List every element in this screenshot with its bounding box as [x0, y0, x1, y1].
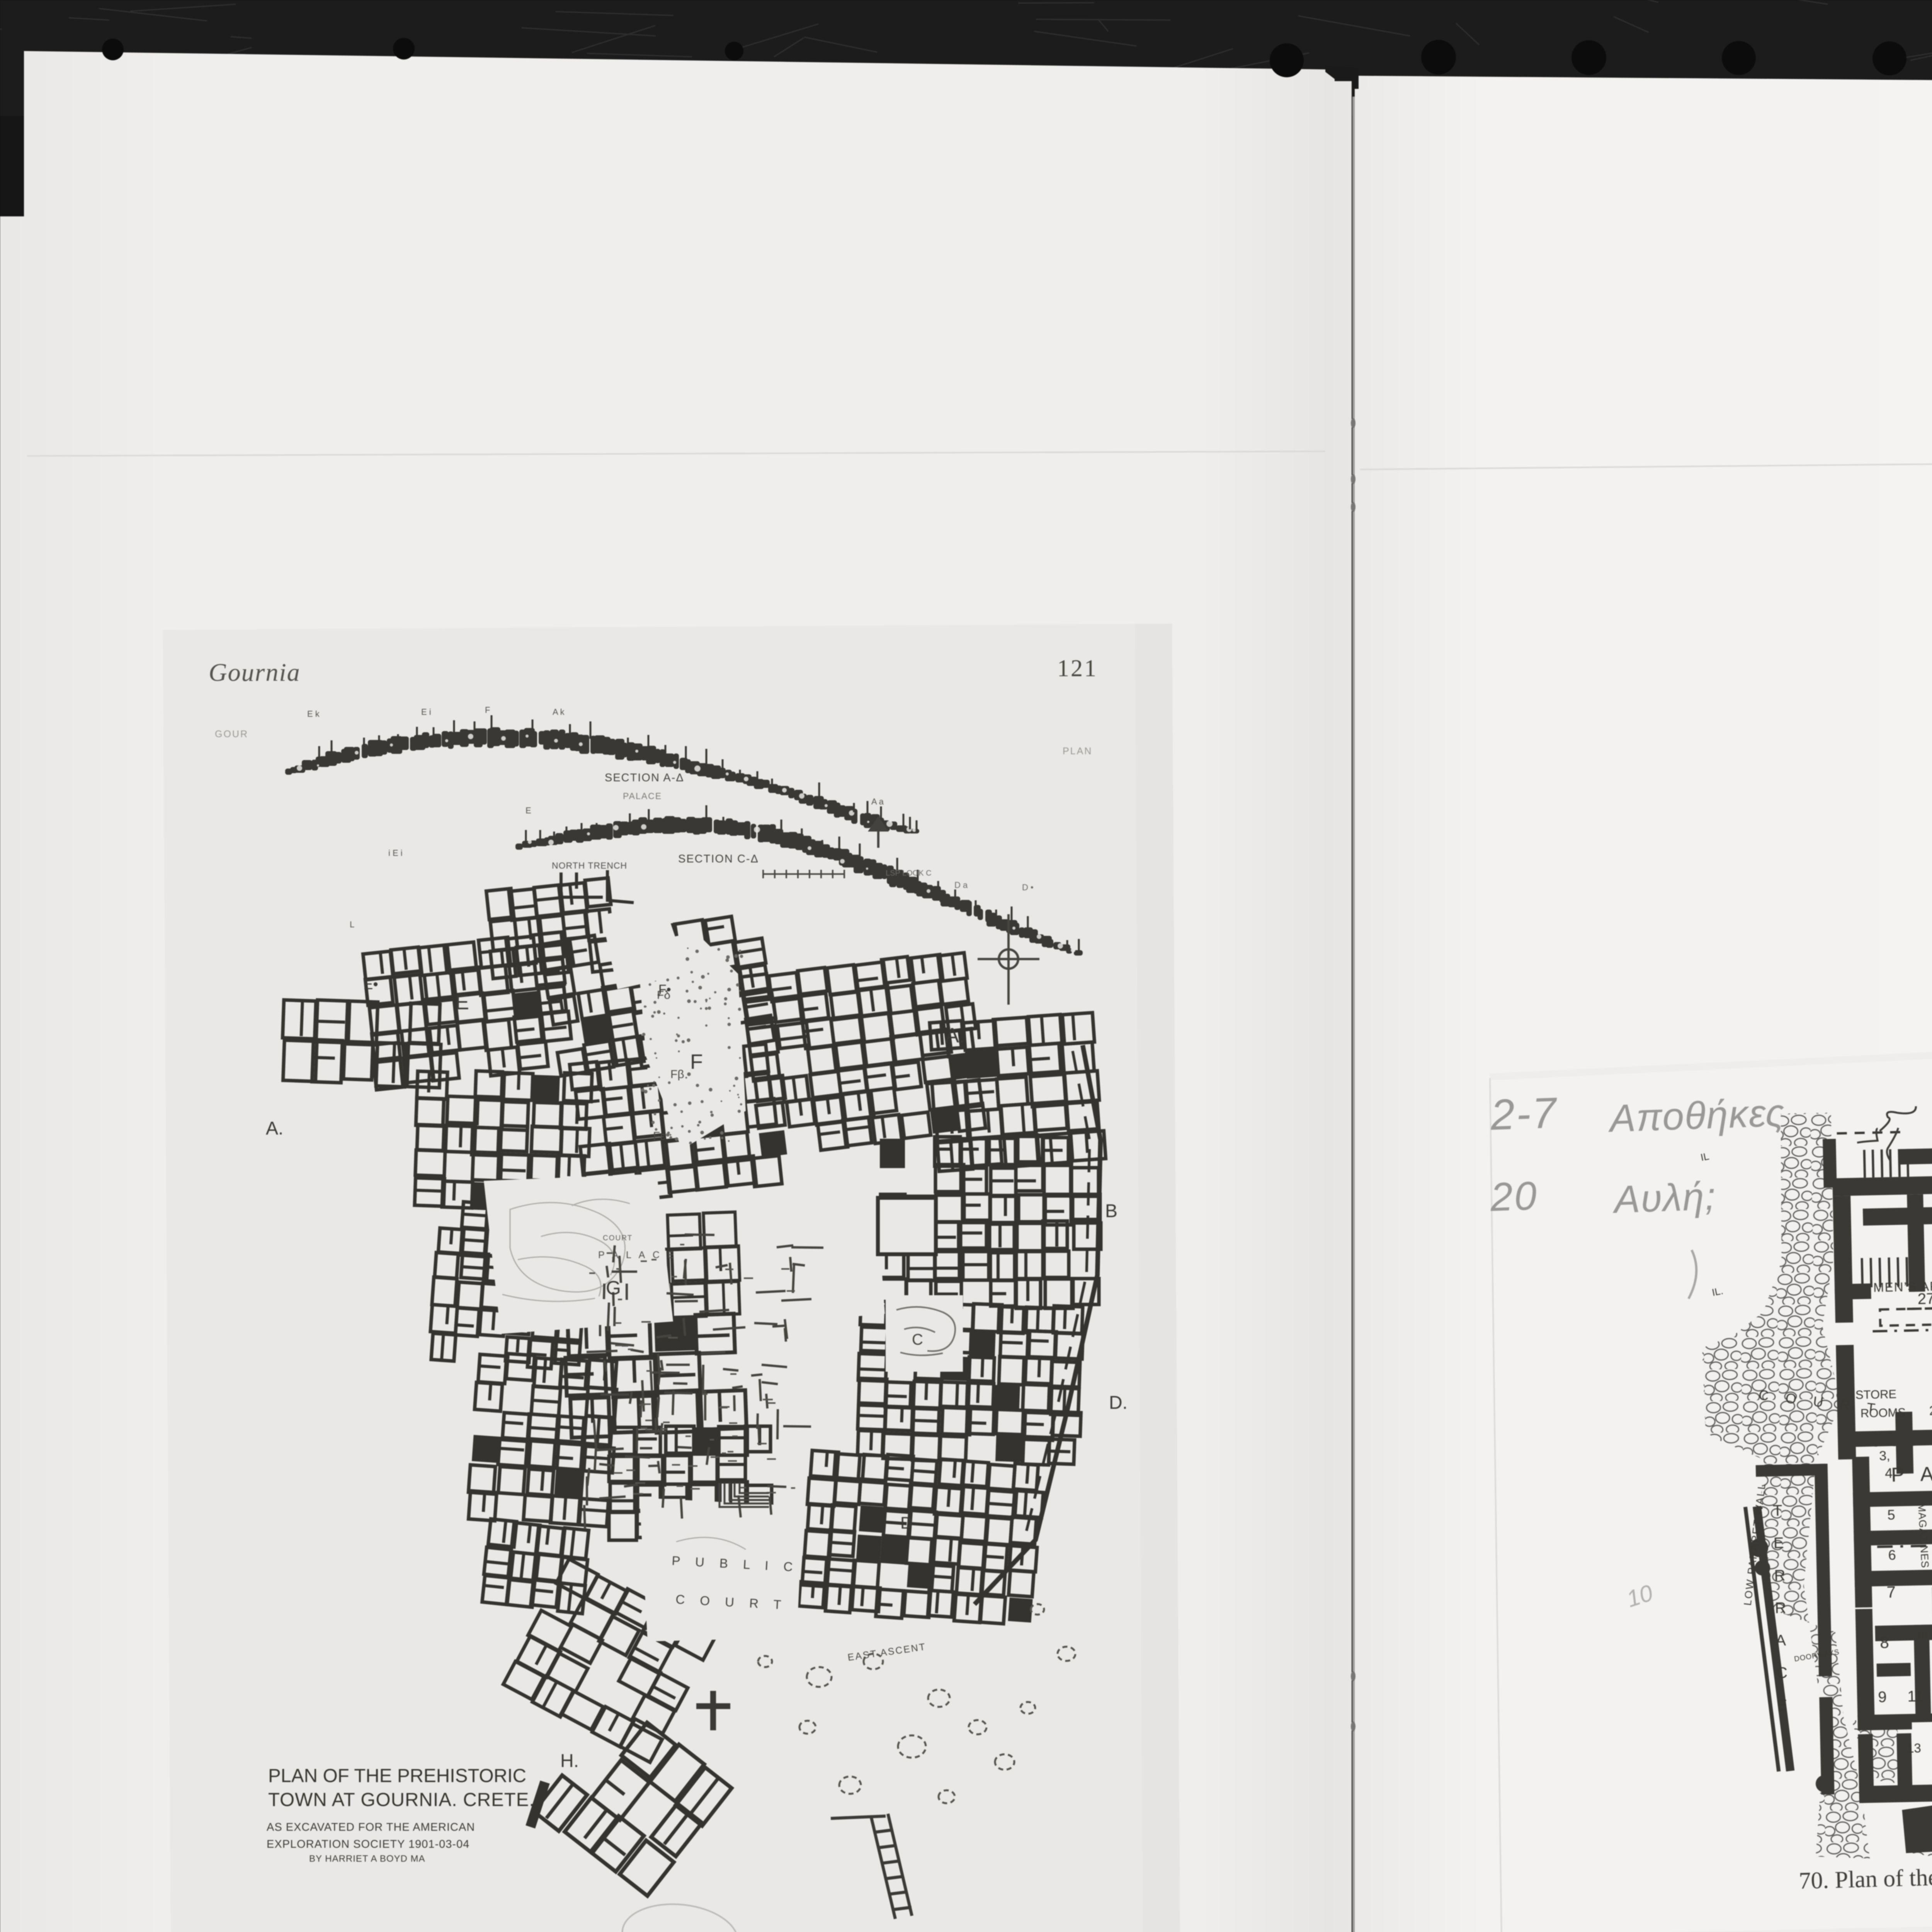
svg-text:T: T — [1773, 1502, 1782, 1519]
svg-text:G: G — [606, 1277, 621, 1299]
svg-text:A k: A k — [553, 707, 565, 717]
svg-text:121: 121 — [1057, 655, 1098, 682]
svg-text:GOUR: GOUR — [215, 729, 248, 740]
svg-text:A: A — [1776, 1632, 1786, 1649]
svg-text:R: R — [1775, 1599, 1786, 1617]
svg-text:E k: E k — [307, 709, 320, 719]
svg-text:E: E — [1777, 1697, 1787, 1714]
svg-text:P A L A C E: P A L A C E — [598, 1250, 677, 1260]
svg-text:20: 20 — [1489, 1173, 1539, 1220]
svg-text:27: 27 — [1917, 1290, 1932, 1308]
svg-text:3,: 3, — [1879, 1449, 1890, 1464]
svg-text:NORTH TRENCH: NORTH TRENCH — [552, 861, 627, 871]
svg-text:PLAN OF THE PREHISTORIC: PLAN OF THE PREHISTORIC — [268, 1765, 526, 1786]
svg-text:B: B — [1105, 1201, 1117, 1221]
svg-text:F: F — [690, 1050, 703, 1073]
svg-text:Αυλή;: Αυλή; — [1611, 1175, 1717, 1221]
svg-text:D.: D. — [1109, 1393, 1128, 1413]
svg-text:E: E — [526, 806, 531, 815]
svg-text:A a: A a — [871, 797, 884, 806]
svg-text:5: 5 — [1887, 1507, 1895, 1522]
svg-text:PALACE: PALACE — [623, 791, 662, 801]
svg-text:LSP LOOK C: LSP LOOK C — [886, 869, 932, 878]
svg-text:E i: E i — [421, 707, 431, 717]
svg-text:L: L — [350, 920, 354, 929]
svg-text:D •: D • — [1022, 883, 1034, 892]
svg-text:C: C — [912, 1331, 923, 1348]
svg-text:4: 4 — [1885, 1465, 1893, 1481]
svg-text:TOWN AT GOURNIA. CRETE.: TOWN AT GOURNIA. CRETE. — [268, 1789, 535, 1810]
svg-text:A.: A. — [945, 1024, 965, 1047]
svg-text:E: E — [1773, 1534, 1784, 1552]
svg-text:E: E — [455, 991, 469, 1014]
svg-text:P A L A C E: P A L A C E — [1891, 1461, 1932, 1486]
svg-text:SECTION C-Δ: SECTION C-Δ — [678, 853, 759, 865]
svg-text:AS EXCAVATED FOR THE AMERICAN: AS EXCAVATED FOR THE AMERICAN — [267, 1821, 475, 1833]
svg-text:EXPLORATION SOCIETY 1901-03-04: EXPLORATION SOCIETY 1901-03-04 — [267, 1838, 469, 1850]
svg-text:C: C — [1776, 1664, 1787, 1682]
svg-text:Αποθήκες: Αποθήκες — [1607, 1091, 1786, 1140]
svg-text:8: 8 — [1880, 1633, 1889, 1651]
svg-text:9: 9 — [1878, 1689, 1887, 1706]
svg-text:BY HARRIET A BOYD MA: BY HARRIET A BOYD MA — [309, 1854, 425, 1864]
svg-text:Fε: Fε — [653, 1130, 665, 1143]
svg-text:7: 7 — [1886, 1583, 1896, 1601]
svg-text:i E i: i E i — [388, 848, 403, 858]
svg-text:D a: D a — [954, 880, 968, 890]
svg-text:E•: E• — [363, 976, 378, 993]
svg-text:IL.: IL. — [1711, 1285, 1724, 1298]
svg-text:11: 11 — [1907, 1688, 1923, 1705]
svg-text:13: 13 — [1907, 1741, 1921, 1755]
svg-text:PLAN: PLAN — [1063, 746, 1092, 757]
svg-text:R: R — [1774, 1567, 1786, 1584]
svg-text:SECTION A-Δ: SECTION A-Δ — [605, 772, 684, 784]
svg-text:2: 2 — [1929, 1403, 1932, 1418]
svg-text:Fβ: Fβ — [670, 1068, 684, 1081]
svg-text:6: 6 — [1888, 1547, 1896, 1563]
svg-text:COURT: COURT — [603, 1234, 633, 1242]
svg-text:10: 10 — [1916, 1630, 1927, 1641]
svg-text:F: F — [485, 705, 490, 715]
svg-text:Gournia: Gournia — [209, 658, 301, 687]
svg-text:A.: A. — [266, 1118, 283, 1139]
svg-text:F•: F• — [658, 982, 671, 997]
svg-text:2-7: 2-7 — [1489, 1088, 1558, 1139]
svg-text:H.: H. — [560, 1751, 579, 1771]
svg-text:D: D — [900, 1514, 913, 1532]
